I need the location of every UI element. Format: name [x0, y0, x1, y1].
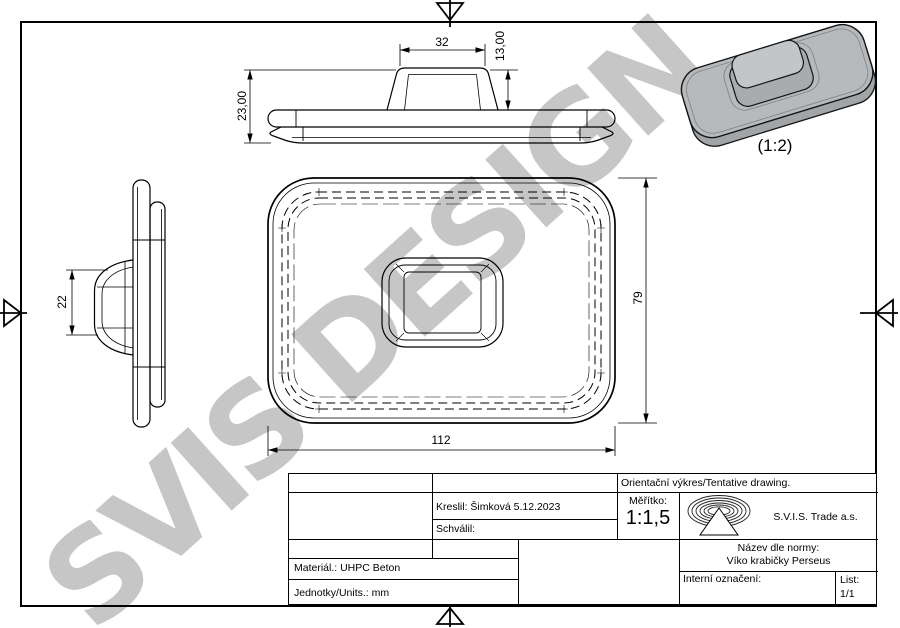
dim-text-knob-width: 32 [435, 35, 449, 49]
dim-text-knob-height: 13,00 [493, 31, 507, 61]
titleblock-line [289, 492, 878, 493]
dim-front-knob-width: 32 [400, 35, 485, 66]
side-view: 22 [55, 180, 165, 427]
titleblock-line [289, 579, 518, 580]
internal-designation-field: Interní označení: [683, 573, 761, 586]
centering-mark-left [0, 300, 27, 326]
dim-plan-width: 112 [268, 426, 615, 456]
dim-text-plan-width: 112 [431, 433, 450, 447]
iso-scale-label: (1:2) [758, 136, 793, 155]
titleblock-line [432, 474, 433, 558]
drawn-by-field: Kreslil: Šimková 5.12.2023 [436, 501, 560, 514]
drawing-sheet: SVIS DESIGN [0, 0, 900, 628]
front-view: 23,00 32 13,00 [235, 31, 615, 143]
title-block: Orientační výkres/Tentative drawing. Kre… [288, 473, 877, 605]
iso-view: (1:2) [676, 19, 881, 155]
tangent-cross-marks [278, 188, 605, 413]
dim-text-total-height: 23,00 [235, 91, 249, 121]
approved-by-field: Schválil: [436, 523, 475, 536]
titleblock-line [432, 519, 617, 520]
sheet-label: List: [840, 574, 859, 587]
dim-text-plan-height: 79 [631, 291, 645, 305]
plan-view: 112 79 [268, 178, 657, 456]
sheet-number: 1/1 [840, 588, 855, 601]
norm-name-label: Název dle normy: [679, 542, 878, 555]
titleblock-line [679, 571, 878, 572]
titleblock-line [289, 539, 878, 540]
company-name: S.V.I.S. Trade a.s. [755, 511, 876, 524]
centering-mark-right [860, 300, 898, 326]
material-field: Materiál.: UHPC Beton [294, 562, 400, 575]
dim-text-knob-span: 22 [55, 295, 69, 309]
centering-mark-top [437, 0, 463, 27]
part-name: Víko krabičky Perseus [679, 555, 878, 568]
scale-value: 1:1,5 [617, 507, 679, 529]
tentative-drawing-note: Orientační výkres/Tentative drawing. [621, 477, 790, 490]
titleblock-line [835, 571, 836, 606]
dim-side-knob-span: 22 [55, 270, 108, 335]
titleblock-line [518, 539, 519, 606]
svis-logo-icon [685, 493, 753, 537]
titleblock-line [289, 558, 518, 559]
units-field: Jednotky/Units.: mm [294, 587, 389, 600]
dim-plan-height: 79 [618, 178, 657, 423]
dim-front-total-height: 23,00 [235, 70, 396, 143]
dim-front-knob-height: 13,00 [490, 31, 518, 110]
